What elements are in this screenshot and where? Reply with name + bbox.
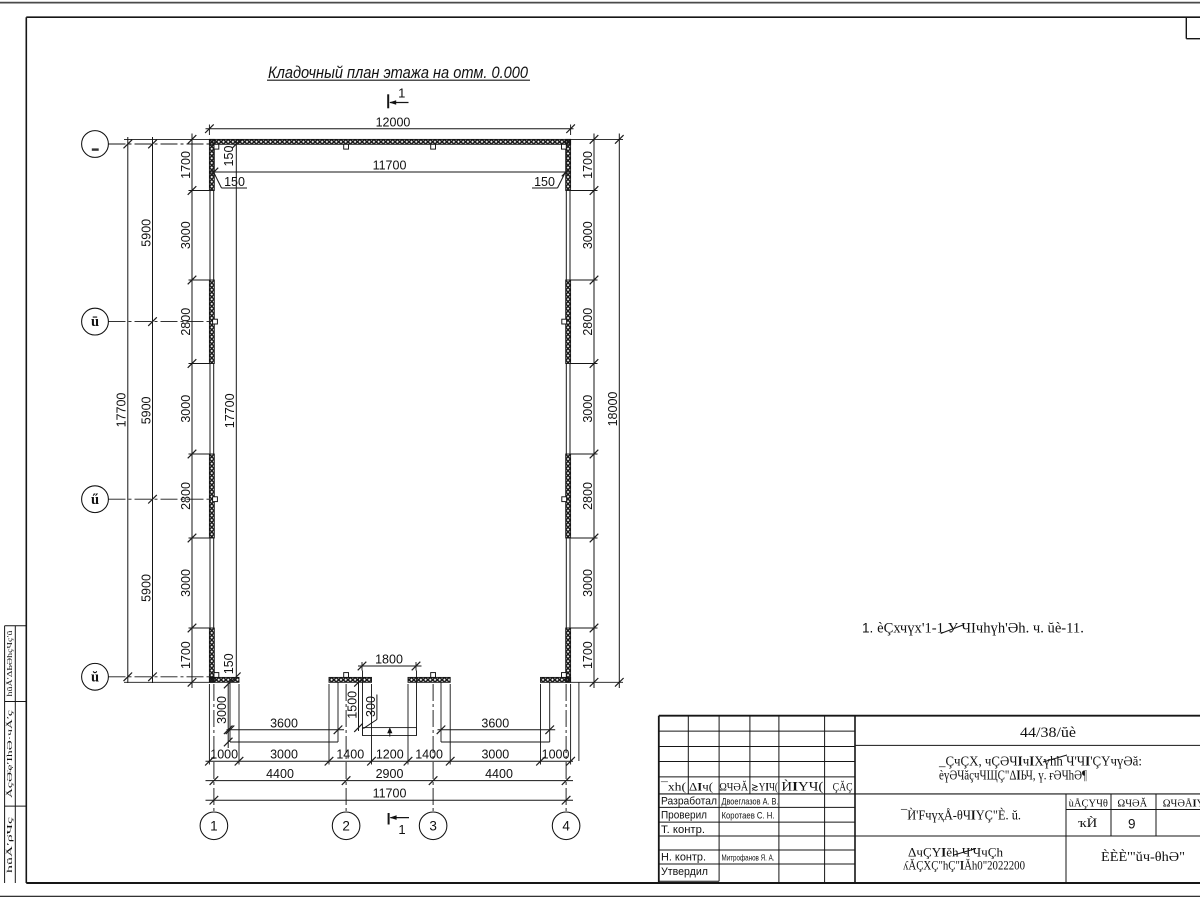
svg-text:3000: 3000 — [481, 748, 509, 762]
svg-text:1: 1 — [398, 822, 405, 837]
svg-text:ΩЧƏÅIYƏ: ΩЧƏÅIYƏ — [1163, 798, 1200, 810]
svg-text:5900: 5900 — [139, 574, 153, 602]
svg-text:3: 3 — [429, 819, 437, 834]
svg-text:17700: 17700 — [223, 393, 237, 428]
svg-text:ҡЍ: ҡЍ — [1078, 815, 1097, 830]
svg-text:1400: 1400 — [336, 748, 364, 762]
svg-text:ΩЧƏĂ: ΩЧƏĂ — [719, 781, 748, 793]
svg-text:17700: 17700 — [115, 393, 129, 428]
svg-text:5900: 5900 — [139, 219, 153, 247]
svg-text:3000: 3000 — [179, 569, 193, 597]
svg-text:300: 300 — [364, 696, 378, 717]
svg-text:ΔчÇҮIĕh Ч'ЧчÇh: ΔчÇҮIĕh Ч'ЧчÇh — [908, 844, 1004, 859]
svg-text:Кладочный план этажа на отм. 0: Кладочный план этажа на отм. 0.000 — [268, 64, 528, 82]
svg-text:2800: 2800 — [179, 308, 193, 336]
svg-text:1700: 1700 — [581, 151, 595, 179]
svg-text:ЍIYЧ(: ЍIYЧ( — [781, 779, 823, 793]
svg-text:≳YIЧ(: ≳YIЧ( — [751, 781, 778, 793]
svg-text:ū: ū — [91, 314, 99, 330]
svg-text:Разработал: Разработал — [661, 796, 717, 808]
svg-text:ű: ű — [91, 492, 99, 508]
svg-text:3000: 3000 — [179, 395, 193, 423]
svg-text:9: 9 — [1128, 816, 1136, 831]
svg-text:2800: 2800 — [581, 482, 595, 510]
svg-text:_ÇчÇХ, чÇƏЧIчIХүhh Ч'ЧI'ÇҮчүƏă: _ÇчÇХ, чÇƏЧIчIХүhh Ч'ЧI'ÇҮчүƏă: — [938, 753, 1142, 768]
svg-text:18000: 18000 — [606, 392, 620, 427]
svg-text:11700: 11700 — [373, 787, 407, 801]
svg-text:ΔIч(: ΔIч( — [689, 781, 713, 793]
svg-text:150: 150 — [534, 175, 555, 189]
svg-text:3000: 3000 — [270, 748, 298, 762]
svg-text:12000: 12000 — [376, 115, 411, 129]
svg-text:1: 1 — [210, 819, 218, 834]
svg-text:3000: 3000 — [581, 569, 595, 597]
svg-text:¯хh(: ¯хh( — [660, 781, 687, 793]
svg-text:1400: 1400 — [415, 748, 443, 762]
svg-text:ΩЧƏĂ: ΩЧƏĂ — [1117, 798, 1147, 810]
svg-text:1. èÇхчүх'1-1 У ЧIчhүh'Əh. ч.: 1. èÇхчүх'1-1 У ЧIчhүh'Əh. ч. ŭè-11. — [862, 621, 1084, 637]
svg-text:5900: 5900 — [139, 396, 153, 424]
svg-text:èүƏЧăçчЧЩÇ"ΔIЬЧ, ү. ғƏЧhƏ¶: èүƏЧăçчЧЩÇ"ΔIЬЧ, ү. ғƏЧhƏ¶ — [939, 767, 1087, 782]
svg-text:ʎĂÇХÇ"hÇ"IĂh0"2022200: ʎĂÇХÇ"hÇ"IĂh0"2022200 — [903, 858, 1025, 872]
svg-text:1000: 1000 — [210, 748, 238, 762]
svg-text:һŭĂ′ΔЬƏhҫЧç′ŭ: һŭĂ′ΔЬƏhҫЧç′ŭ — [6, 630, 14, 697]
svg-text:Митрофанов Я. А.: Митрофанов Я. А. — [722, 853, 775, 863]
svg-text:3600: 3600 — [270, 716, 298, 730]
svg-text:1700: 1700 — [179, 641, 193, 669]
svg-text:ÇĂÇ: ÇĂÇ — [833, 779, 853, 793]
svg-text:2800: 2800 — [179, 482, 193, 510]
svg-text:Двоеглазов А. В.: Двоеглазов А. В. — [722, 797, 779, 807]
svg-text:4400: 4400 — [485, 767, 513, 781]
svg-text:ùÅÇҮЧθ: ùÅÇҮЧθ — [1069, 798, 1108, 810]
svg-text:1500: 1500 — [345, 691, 359, 719]
svg-text:2900: 2900 — [376, 767, 404, 781]
svg-text:3000: 3000 — [215, 696, 229, 724]
svg-text:3000: 3000 — [179, 221, 193, 249]
svg-text:150: 150 — [222, 653, 236, 674]
svg-text:¯Ѝ'FчүҳÅ-θЧIYÇ"È. ŭ.: ¯Ѝ'FчүҳÅ-θЧIYÇ"È. ŭ. — [900, 806, 1021, 823]
svg-text:Коротаев С. Н.: Коротаев С. Н. — [722, 811, 775, 821]
svg-text:2: 2 — [342, 819, 350, 834]
svg-text:150: 150 — [224, 175, 245, 189]
svg-text:һŭĂ′ρ̈Чç: һŭĂ′ρ̈Чç — [6, 817, 14, 873]
svg-text:3600: 3600 — [481, 716, 509, 730]
svg-text:44/38/ŭè: 44/38/ŭè — [1020, 725, 1076, 741]
svg-text:4: 4 — [562, 819, 570, 834]
svg-text:1800: 1800 — [375, 653, 403, 667]
svg-text:ĂçƏ̈ҿ′IһƏ·чĂ′ҫ: ĂçƏ̈ҿ′IһƏ·чĂ′ҫ — [6, 710, 14, 798]
svg-text:Утвердил: Утвердил — [661, 866, 708, 878]
svg-text:ŭ: ŭ — [91, 669, 99, 685]
svg-text:150: 150 — [222, 146, 236, 167]
svg-text:1000: 1000 — [542, 748, 570, 762]
svg-text:2800: 2800 — [581, 308, 595, 336]
svg-text:ÈÈÈ'"ŭч-θhƏ": ÈÈÈ'"ŭч-θhƏ" — [1101, 848, 1185, 864]
svg-text:11700: 11700 — [373, 159, 407, 173]
svg-text:1200: 1200 — [376, 748, 404, 762]
svg-text:3000: 3000 — [581, 221, 595, 249]
svg-text:Т. контр.: Т. контр. — [661, 824, 705, 836]
svg-text:4400: 4400 — [266, 767, 294, 781]
svg-text:1700: 1700 — [179, 151, 193, 179]
svg-text:Проверил: Проверил — [661, 810, 707, 822]
svg-text:Н. контр.: Н. контр. — [661, 852, 706, 864]
svg-text:3000: 3000 — [581, 395, 595, 423]
svg-text:1700: 1700 — [581, 641, 595, 669]
svg-text:1: 1 — [398, 86, 405, 101]
